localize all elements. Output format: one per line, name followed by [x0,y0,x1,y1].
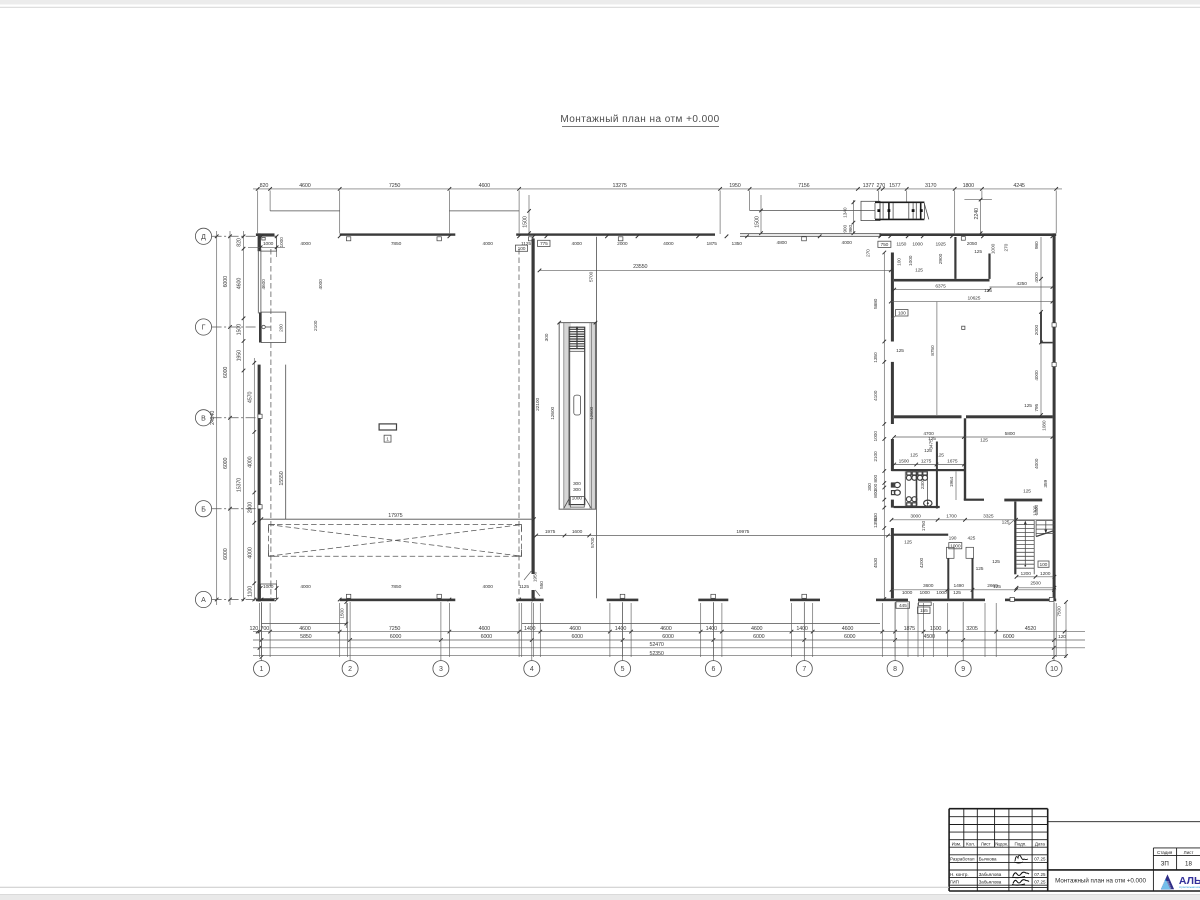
svg-text:5800: 5800 [1005,431,1016,437]
svg-text:270: 270 [866,249,872,257]
svg-text:1200: 1200 [1021,571,1032,577]
svg-text:1000: 1000 [873,431,879,442]
svg-text:1500: 1500 [237,324,243,336]
svg-text:155: 155 [920,608,928,614]
svg-text:В: В [201,416,206,423]
svg-text:Изм.: Изм. [952,842,962,847]
svg-text:А: А [201,597,206,604]
svg-text:Д: Д [201,234,206,241]
svg-text:Лист: Лист [981,842,991,847]
svg-text:12600: 12600 [550,406,556,419]
svg-text:795: 795 [1034,404,1040,412]
svg-text:3170: 3170 [925,183,937,189]
svg-text:1750: 1750 [921,521,927,532]
svg-text:1: 1 [386,437,389,443]
svg-text:15370: 15370 [237,478,243,492]
svg-text:1350: 1350 [732,241,743,247]
svg-text:425: 425 [967,536,975,542]
svg-text:445: 445 [899,603,907,609]
svg-text:6000: 6000 [662,634,674,640]
svg-text:2240: 2240 [974,208,980,220]
svg-text:10: 10 [1050,666,1058,673]
svg-text:4000: 4000 [1034,458,1040,469]
svg-text:4000: 4000 [248,547,254,559]
svg-text:7250: 7250 [389,183,401,189]
svg-text:6: 6 [711,666,715,673]
svg-text:4245: 4245 [1013,183,1025,189]
svg-text:125: 125 [896,348,904,354]
svg-text:4000: 4000 [248,456,254,468]
svg-text:2050: 2050 [967,241,978,247]
svg-text:1400: 1400 [615,626,627,632]
svg-text:Разработал: Разработал [950,856,975,861]
svg-text:820: 820 [237,238,243,247]
svg-text:100: 100 [897,258,903,266]
svg-text:8: 8 [893,666,897,673]
svg-text:125: 125 [1023,488,1031,494]
svg-text:1080: 1080 [1042,420,1048,431]
svg-text:5: 5 [621,666,625,673]
svg-text:1377: 1377 [863,183,875,189]
svg-text:3600: 3600 [923,583,934,589]
svg-text:125: 125 [993,584,1001,590]
svg-text:2100: 2100 [313,320,319,331]
svg-text:1000: 1000 [908,255,914,266]
svg-text:120: 120 [250,626,259,632]
svg-text:980: 980 [848,225,854,233]
svg-text:Подп.: Подп. [1015,842,1027,847]
svg-text:Стадия: Стадия [1157,850,1173,855]
svg-text:1000: 1000 [936,590,947,596]
svg-text:4000: 4000 [663,241,674,247]
svg-text:Лист: Лист [1184,850,1194,855]
svg-text:1200: 1200 [1040,571,1051,577]
svg-text:18: 18 [1185,861,1192,868]
svg-text:Бычкова: Бычкова [979,856,997,861]
svg-text:4600: 4600 [261,279,267,290]
svg-text:23550: 23550 [633,264,647,270]
svg-text:4600: 4600 [660,626,672,632]
svg-text:4000: 4000 [483,241,494,247]
svg-text:6000: 6000 [223,276,229,288]
svg-text:1875: 1875 [904,626,916,632]
svg-text:125: 125 [924,448,932,454]
svg-text:1600: 1600 [572,529,583,535]
svg-text:359: 359 [1043,480,1049,488]
svg-text:07.25: 07.25 [1034,872,1046,877]
svg-text:4600: 4600 [237,278,243,290]
svg-text:300: 300 [573,481,581,487]
svg-text:1490: 1490 [954,583,965,589]
svg-text:1000: 1000 [991,243,997,254]
svg-text:1577: 1577 [889,183,901,189]
svg-text:100: 100 [1040,562,1048,568]
svg-text:1950: 1950 [237,350,243,362]
svg-text:6000: 6000 [753,634,765,640]
svg-text:Забьялова: Забьялова [979,880,1002,885]
svg-text:4250: 4250 [1017,281,1028,287]
svg-text:2900: 2900 [938,253,944,264]
svg-text:Н. контр.: Н. контр. [950,872,969,877]
svg-text:52470: 52470 [649,642,663,648]
svg-text:300: 300 [867,483,873,491]
svg-text:1000: 1000 [279,237,285,248]
svg-text:2300: 2300 [920,478,926,489]
svg-text:900: 900 [843,225,849,233]
svg-text:7500: 7500 [1057,606,1063,617]
svg-text:6000: 6000 [1003,634,1015,640]
svg-text:4000: 4000 [572,241,583,247]
svg-text:1000: 1000 [263,241,274,247]
svg-text:Дата: Дата [1035,842,1045,847]
svg-text:4800: 4800 [777,240,788,246]
svg-text:2000: 2000 [617,241,628,247]
svg-text:4: 4 [530,666,534,673]
svg-text:1875: 1875 [707,241,718,247]
svg-text:4000: 4000 [842,240,853,246]
svg-text:7850: 7850 [391,584,402,590]
svg-text:6000: 6000 [223,457,229,469]
svg-text:300: 300 [573,487,581,493]
svg-text:Забьялова: Забьялова [979,872,1002,877]
svg-text:2000: 2000 [1034,325,1040,336]
svg-text:13275: 13275 [612,183,626,189]
svg-text:1800: 1800 [963,183,975,189]
svg-text:1925: 1925 [935,241,946,247]
svg-text:17975: 17975 [388,513,402,519]
svg-text:270: 270 [877,183,886,189]
svg-text:4530: 4530 [873,557,879,568]
svg-text:10625: 10625 [967,295,980,301]
svg-text:Монтажный план на отм +0.000: Монтажный план на отм +0.000 [560,114,719,125]
svg-text:4600: 4600 [479,626,491,632]
svg-text:9: 9 [961,666,965,673]
svg-text:1000: 1000 [902,590,913,596]
svg-text:270: 270 [1004,243,1010,251]
svg-text:4570: 4570 [248,392,254,404]
svg-text:3325: 3325 [983,514,994,520]
svg-text:4000: 4000 [1034,272,1040,283]
svg-text:1500: 1500 [755,216,761,228]
svg-text:6375: 6375 [935,283,946,289]
svg-text:800: 800 [873,490,879,498]
svg-text:4600: 4600 [479,183,491,189]
svg-text:1700: 1700 [946,514,957,520]
svg-text:3: 3 [439,666,443,673]
svg-text:125: 125 [974,249,982,255]
svg-text:125: 125 [992,559,1000,565]
svg-text:1125: 1125 [519,584,529,590]
svg-text:1400: 1400 [706,626,718,632]
svg-text:1400: 1400 [796,626,808,632]
svg-text:125: 125 [976,566,984,572]
svg-text:6000: 6000 [223,548,229,560]
svg-text:1500: 1500 [523,216,529,228]
svg-text:4600: 4600 [299,626,311,632]
svg-text:4000: 4000 [300,241,311,247]
svg-text:1000: 1000 [950,544,961,550]
svg-text:820: 820 [260,183,269,189]
svg-text:4000: 4000 [483,584,494,590]
svg-text:125: 125 [980,438,988,444]
svg-text:550: 550 [539,581,545,589]
svg-text:3000: 3000 [910,514,921,520]
svg-text:4000: 4000 [318,279,324,290]
svg-text:125: 125 [1024,403,1032,409]
svg-text:4000: 4000 [300,584,311,590]
svg-text:125: 125 [910,453,918,459]
svg-text:Монтажный план на отм +0.000: Монтажный план на отм +0.000 [1055,878,1146,885]
svg-text:980: 980 [1034,241,1040,249]
svg-text:2000: 2000 [248,502,254,514]
svg-text:4600: 4600 [569,626,581,632]
svg-text:4600: 4600 [842,626,854,632]
svg-text:1600: 1600 [930,626,942,632]
svg-text:1950: 1950 [729,183,741,189]
svg-text:строительная компания: строительная компания [1179,886,1200,889]
svg-text:5700: 5700 [590,537,596,548]
svg-text:Г: Г [202,325,206,332]
svg-text:6000: 6000 [571,634,583,640]
svg-text:3205: 3205 [966,626,978,632]
svg-text:07.25: 07.25 [1034,856,1046,861]
svg-text:8750: 8750 [930,345,936,356]
svg-text:ЗП: ЗП [1161,861,1169,868]
svg-text:ГИП: ГИП [950,880,959,885]
svg-text:1: 1 [260,666,264,673]
svg-text:125: 125 [984,288,992,294]
svg-text:1975: 1975 [545,529,556,535]
svg-text:125: 125 [904,540,912,546]
svg-text:1950: 1950 [533,571,539,582]
svg-text:22100: 22100 [535,398,541,411]
svg-text:1000: 1000 [572,496,583,502]
svg-text:1000: 1000 [263,584,274,590]
svg-text:300: 300 [544,333,550,341]
svg-text:7850: 7850 [391,241,402,247]
svg-text:100: 100 [518,246,526,252]
svg-text:4600: 4600 [299,183,311,189]
svg-text:1675: 1675 [947,459,958,465]
svg-text:07.25: 07.25 [1034,880,1046,885]
svg-text:1350: 1350 [873,517,879,528]
svg-text:2500: 2500 [1030,580,1041,586]
svg-text:700: 700 [261,626,270,632]
svg-text:Б: Б [201,506,206,513]
svg-text:6000: 6000 [481,634,493,640]
svg-text:52350: 52350 [649,651,663,657]
svg-text:19975: 19975 [736,529,749,535]
svg-text:6000: 6000 [223,367,229,379]
svg-text:1964: 1964 [949,476,955,487]
svg-text:1150: 1150 [896,241,906,247]
svg-text:1000: 1000 [919,590,930,596]
svg-text:125: 125 [936,453,944,459]
svg-text:100: 100 [898,311,906,317]
svg-text:5850: 5850 [300,634,312,640]
svg-text:125: 125 [928,436,936,442]
svg-text:15550: 15550 [279,471,285,485]
svg-text:1340: 1340 [843,207,849,218]
svg-text:6000: 6000 [844,634,856,640]
svg-text:4600: 4600 [751,626,763,632]
svg-text:4000: 4000 [1034,370,1040,381]
svg-text:200: 200 [279,324,285,332]
svg-text:4200: 4200 [919,557,925,568]
svg-text:750: 750 [881,242,889,248]
svg-text:4520: 4520 [1025,626,1037,632]
svg-text:6000: 6000 [390,634,402,640]
svg-text:125: 125 [953,590,961,596]
svg-text:125: 125 [915,267,923,273]
svg-text:5880: 5880 [873,298,879,309]
svg-text:800: 800 [873,475,879,483]
svg-text:1000: 1000 [912,241,923,247]
svg-text:1500: 1500 [899,459,910,465]
svg-text:7: 7 [802,666,806,673]
svg-text:7250: 7250 [389,626,401,632]
svg-text:1350: 1350 [873,352,879,363]
svg-text:№док.: №док. [995,842,1008,847]
svg-text:190: 190 [949,536,957,542]
svg-text:120: 120 [1058,634,1066,640]
svg-text:1275: 1275 [921,459,932,465]
svg-text:775: 775 [540,241,548,247]
svg-text:12600: 12600 [589,406,595,419]
svg-text:4700: 4700 [923,431,934,437]
svg-text:1300: 1300 [1034,505,1040,516]
svg-text:1100: 1100 [248,586,254,597]
svg-text:1500: 1500 [340,608,346,619]
svg-text:4100: 4100 [873,390,879,401]
svg-text:Кол.: Кол. [966,842,975,847]
svg-text:5700: 5700 [589,271,595,282]
svg-text:7156: 7156 [798,183,810,189]
svg-text:2: 2 [348,666,352,673]
svg-text:2100: 2100 [873,451,879,462]
